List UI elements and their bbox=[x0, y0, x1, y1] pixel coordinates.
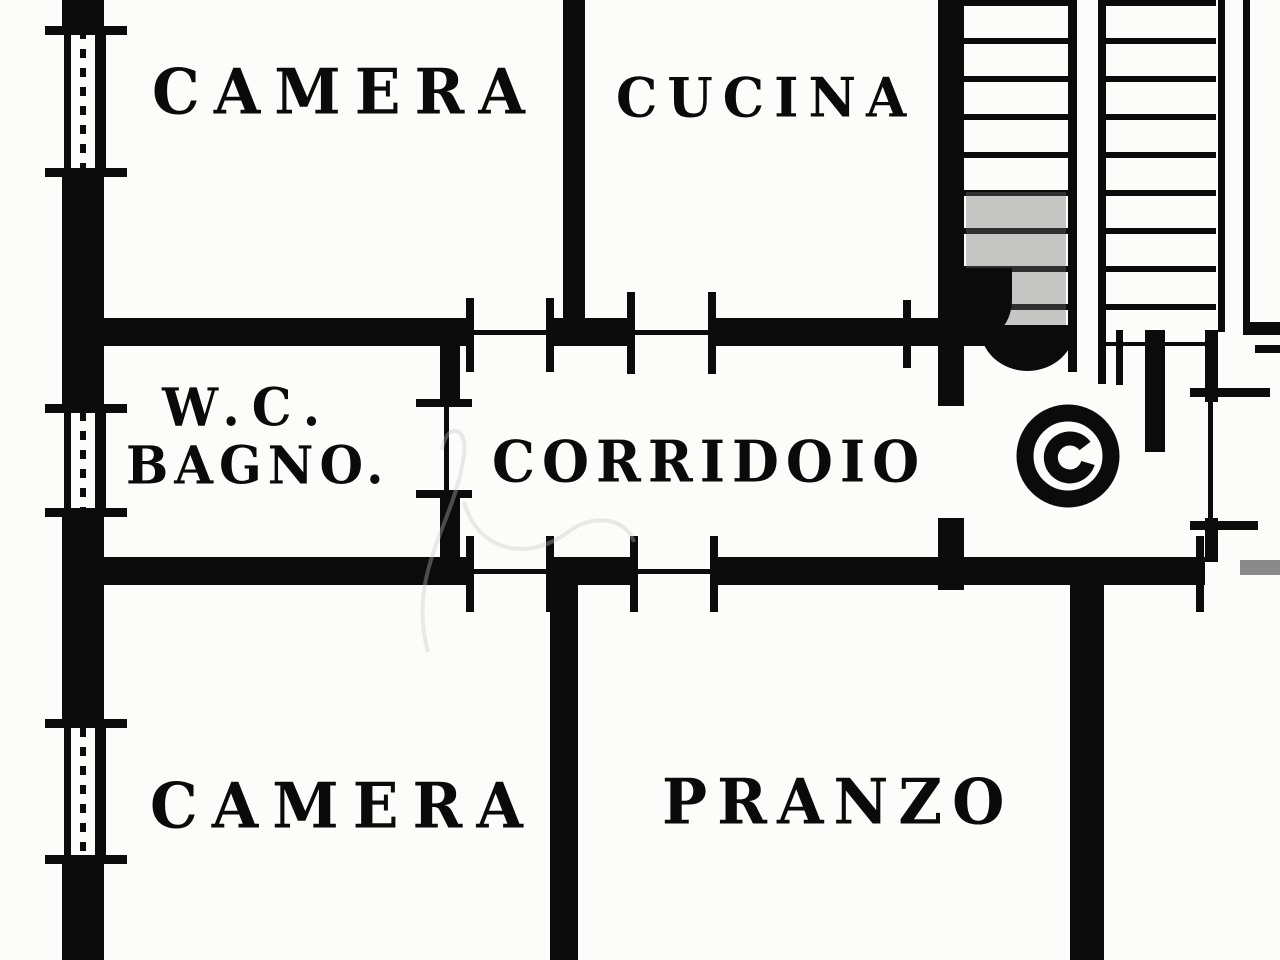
room-label-camera-bottom: CAMERA bbox=[150, 770, 537, 844]
room-label-camera-top: CAMERA bbox=[152, 56, 539, 130]
door-jamb bbox=[1190, 521, 1258, 530]
window-icon bbox=[80, 728, 86, 856]
wall bbox=[62, 863, 104, 960]
wall-camera-cucina-divider bbox=[563, 0, 585, 318]
wall bbox=[62, 177, 104, 411]
door-jamb bbox=[903, 300, 911, 368]
stair-stringer bbox=[1116, 330, 1123, 385]
window-icon bbox=[80, 30, 86, 170]
staircase-icon bbox=[1106, 0, 1216, 346]
elevator-spiral-icon bbox=[1012, 400, 1124, 512]
room-label-pranzo: PRANZO bbox=[662, 766, 1014, 840]
door-threshold bbox=[1208, 402, 1213, 518]
wall bbox=[1243, 0, 1250, 332]
wall bbox=[62, 516, 104, 726]
room-label-wc: W.C. bbox=[162, 376, 332, 438]
wall bbox=[1243, 322, 1280, 335]
wall bbox=[714, 318, 962, 346]
wall bbox=[716, 557, 1205, 585]
wall bbox=[62, 318, 474, 346]
door-jamb bbox=[1190, 388, 1270, 397]
window-icon bbox=[95, 412, 106, 508]
door-jamb bbox=[546, 298, 554, 372]
stair-stringer bbox=[1145, 330, 1165, 452]
window-icon bbox=[64, 412, 71, 508]
window-icon bbox=[95, 30, 106, 170]
window-sill-tick bbox=[45, 404, 127, 413]
door-jamb bbox=[627, 292, 635, 374]
floor-plan: CAMERA CUCINA W.C. BAGNO. CORRIDOIO CAME… bbox=[0, 0, 1280, 960]
window-sill-tick bbox=[45, 26, 127, 35]
wall-faded bbox=[1240, 560, 1280, 575]
window-icon bbox=[95, 728, 106, 856]
stair-newel-arc bbox=[980, 325, 1075, 371]
room-label-bagno: BAGNO. bbox=[126, 434, 390, 496]
door-threshold bbox=[474, 330, 552, 335]
wall bbox=[1255, 345, 1280, 353]
door-threshold bbox=[629, 330, 714, 335]
stair-stringer bbox=[1068, 0, 1077, 372]
door-jamb bbox=[466, 298, 474, 372]
door-jamb bbox=[1196, 536, 1204, 612]
window-icon bbox=[64, 728, 71, 856]
window-icon bbox=[80, 412, 86, 508]
room-label-corridoio: CORRIDOIO bbox=[492, 428, 926, 495]
window-sill-tick bbox=[45, 168, 127, 177]
door-jamb bbox=[708, 292, 716, 374]
wall bbox=[552, 318, 629, 346]
wall bbox=[1218, 0, 1225, 332]
window-sill-tick bbox=[45, 719, 127, 728]
stair-stringer bbox=[1098, 0, 1106, 384]
window-icon bbox=[64, 30, 71, 170]
wall-pranzo-right bbox=[1070, 580, 1104, 960]
room-label-cucina: CUCINA bbox=[616, 66, 916, 130]
